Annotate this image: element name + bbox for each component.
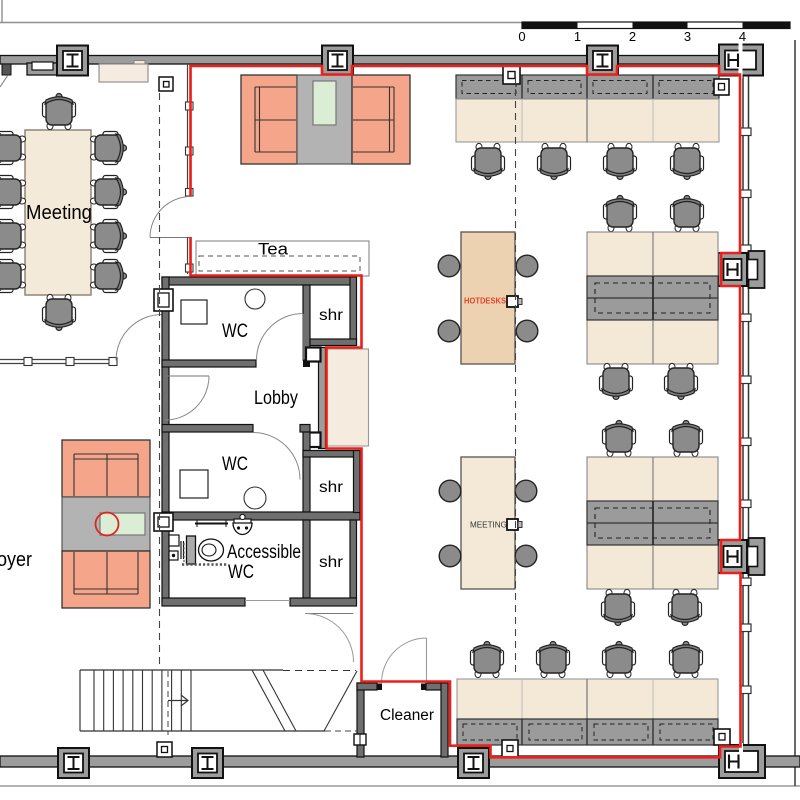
svg-text:WC: WC [222, 321, 248, 342]
svg-text:3: 3 [684, 29, 691, 44]
svg-text:Foyer: Foyer [0, 549, 32, 571]
svg-text:shr: shr [319, 479, 344, 496]
svg-text:Meeting: Meeting [26, 202, 92, 224]
svg-text:0: 0 [518, 29, 525, 44]
svg-text:shr: shr [319, 554, 344, 571]
svg-text:Tea: Tea [258, 240, 289, 259]
svg-text:Cleaner: Cleaner [380, 707, 434, 724]
svg-text:Accessible: Accessible [227, 542, 301, 563]
svg-text:2: 2 [629, 29, 636, 44]
svg-text:Lobby: Lobby [254, 388, 298, 409]
svg-text:WC: WC [228, 562, 254, 583]
svg-text:MEETING: MEETING [470, 521, 507, 530]
svg-text:WC: WC [222, 454, 248, 475]
svg-text:1: 1 [574, 29, 581, 44]
svg-text:shr: shr [319, 307, 344, 324]
svg-text:HOTDESKS: HOTDESKS [464, 297, 507, 306]
svg-text:4: 4 [739, 29, 746, 44]
